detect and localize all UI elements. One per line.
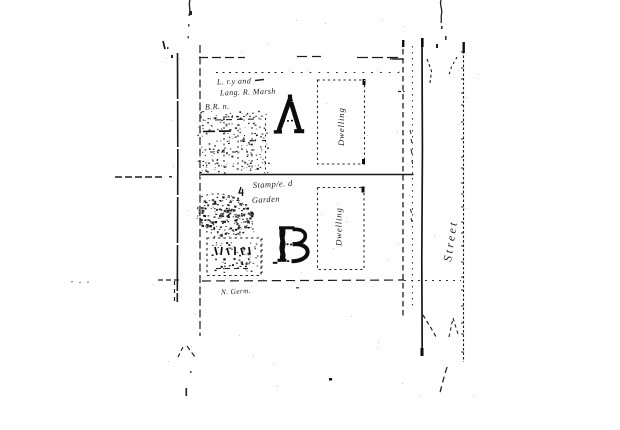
svg-text:B.R. n.: B.R. n. [205, 102, 230, 112]
svg-text:N. Germ.: N. Germ. [220, 286, 252, 297]
svg-text:Garden: Garden [252, 194, 281, 205]
svg-text:Dwelling: Dwelling [336, 107, 346, 147]
svg-text:Stamp/e. d: Stamp/e. d [253, 178, 294, 190]
svg-text:L. r.y and: L. r.y and [216, 76, 252, 86]
svg-text:Dwelling: Dwelling [334, 207, 344, 247]
